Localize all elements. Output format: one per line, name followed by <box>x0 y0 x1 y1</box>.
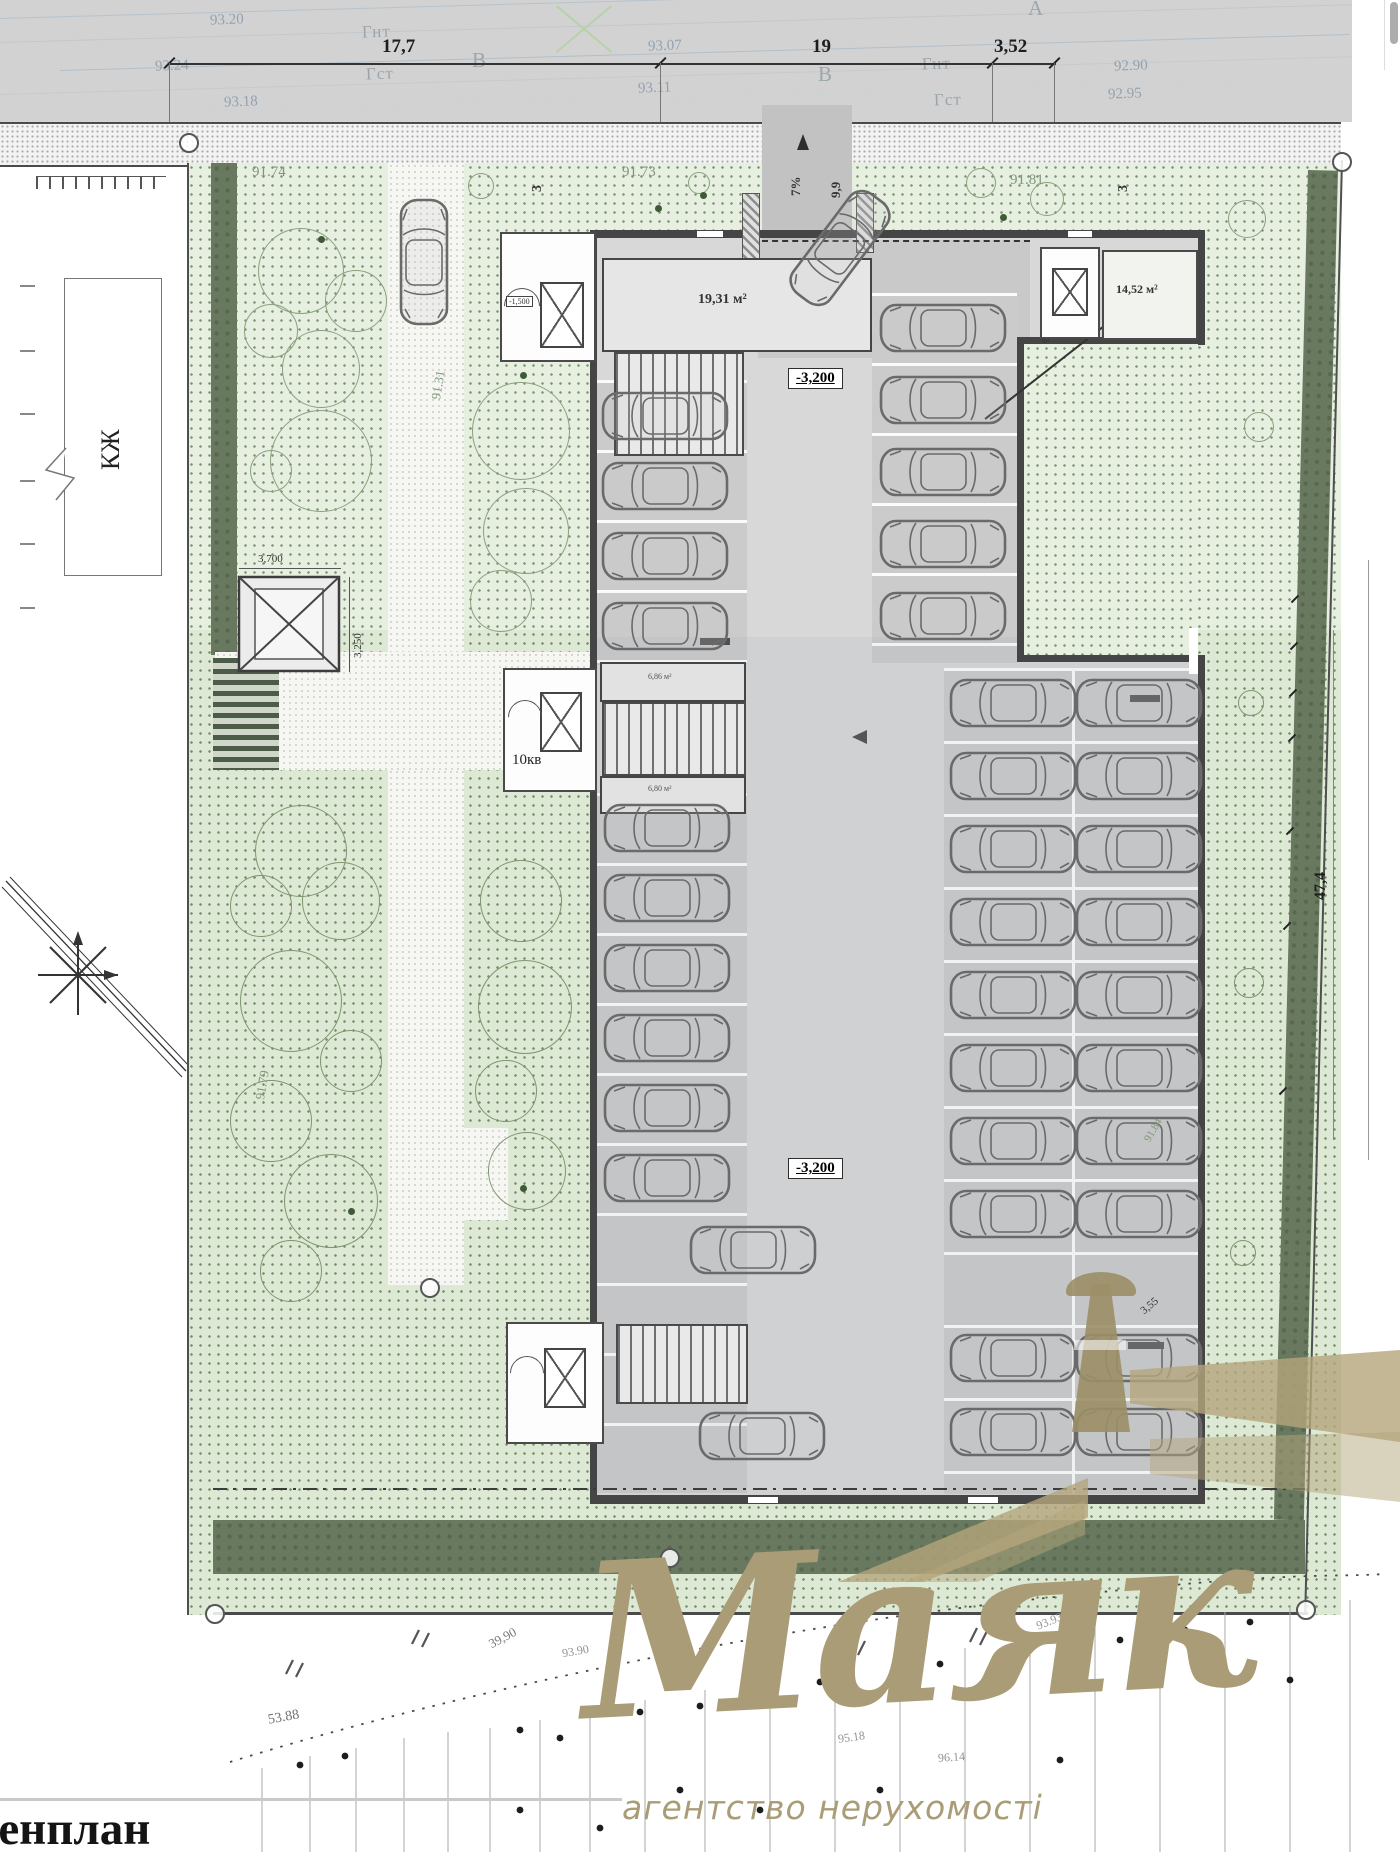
shrub-dot <box>700 192 707 199</box>
car-icon <box>1074 894 1204 950</box>
level-label-box: -3,200 <box>788 368 843 389</box>
wall-opening <box>697 231 723 237</box>
car-icon <box>948 894 1078 950</box>
car-icon <box>948 821 1078 877</box>
garage-wall-top <box>590 230 1205 238</box>
car-icon <box>602 1080 732 1136</box>
tree <box>230 875 292 937</box>
car-icon <box>1074 1040 1204 1096</box>
stairwell-lower[interactable] <box>616 1324 748 1404</box>
lighthouse-stripe <box>1074 1340 1126 1350</box>
shrub-dot <box>318 236 325 243</box>
survey-dash <box>20 350 35 352</box>
car-icon <box>602 1010 732 1066</box>
scrollbar-track <box>1384 0 1385 70</box>
footer-rule <box>0 1798 622 1801</box>
car-icon <box>1074 1113 1204 1169</box>
small-room-area: 6,80 м² <box>648 784 671 793</box>
elevation-label: 92.95 <box>1108 85 1142 103</box>
elevation-label: 93.11 <box>638 79 672 97</box>
garage-wall-west <box>590 230 597 1503</box>
tree <box>1230 1240 1256 1266</box>
extension-line <box>992 63 993 122</box>
tree <box>1234 968 1264 998</box>
brand-tagline: агентство нерухомості <box>622 1788 1043 1827</box>
dimension-line <box>1333 630 1334 1140</box>
tree <box>1228 200 1266 238</box>
garage-wall-east-upper <box>1198 230 1205 345</box>
survey-dash <box>20 607 35 609</box>
utility-label-gst: Гст <box>366 64 394 85</box>
elevator-upper[interactable] <box>540 282 584 348</box>
room-area-label: 14,52 м² <box>1116 282 1158 297</box>
car-icon <box>1074 748 1204 804</box>
survey-dash <box>20 543 35 545</box>
landscape-pocket <box>1024 344 1198 655</box>
car-icon <box>948 1330 1078 1386</box>
car-icon <box>878 300 1008 356</box>
ramp-direction-arrow <box>797 134 809 150</box>
dimension-line <box>170 63 1056 65</box>
tree <box>480 860 562 942</box>
wall-opening <box>1068 231 1092 237</box>
car-icon <box>878 516 1008 572</box>
site-plan-canvas: 93.20 93.24 93.18 93.07 93.11 92.90 92.9… <box>0 0 1400 1852</box>
car-icon <box>878 588 1008 644</box>
tree <box>966 168 996 198</box>
boundary-marker <box>420 1278 440 1298</box>
dimension-label: 3,52 <box>994 36 1027 58</box>
setback-dim: 3 <box>1116 185 1132 192</box>
level-value: -3,200 <box>796 1160 835 1176</box>
tree <box>475 1060 537 1122</box>
tree <box>468 173 494 199</box>
axis-label-a: А <box>1028 0 1043 21</box>
tree <box>230 1080 312 1162</box>
wall-opening <box>1189 628 1198 674</box>
shaft-height-label: 3,250 <box>352 633 364 658</box>
dimension-line <box>349 577 350 672</box>
car-icon <box>600 598 730 654</box>
garage-wall-east-block-top <box>1023 655 1205 662</box>
car-icon <box>948 675 1078 731</box>
boundary-marker <box>1332 152 1352 172</box>
tree <box>472 382 570 480</box>
car-icon <box>1074 1186 1204 1242</box>
level-value: -3,200 <box>796 370 835 386</box>
shrub-dot <box>348 1208 355 1215</box>
survey-dash <box>20 285 35 287</box>
tree <box>1238 690 1264 716</box>
car-icon <box>697 1408 827 1464</box>
car-icon <box>1074 967 1204 1023</box>
hedge <box>211 163 237 655</box>
car-icon <box>396 197 452 327</box>
car-icon <box>1074 675 1204 731</box>
tree <box>488 1132 566 1210</box>
shrub-dot <box>655 205 662 212</box>
ramp-slope-label: 7% <box>788 177 804 197</box>
north-compass-icon <box>0 875 190 1075</box>
car-icon <box>600 388 730 444</box>
tree <box>284 1154 378 1248</box>
extension-line <box>1054 63 1055 122</box>
apartments-label: 10кв <box>512 752 541 769</box>
extension-line <box>660 63 661 122</box>
spot-elevation: 91.74 <box>252 164 286 181</box>
neighbor-building-label: КЖ <box>96 429 126 470</box>
tree <box>320 1030 382 1092</box>
tree <box>282 330 360 408</box>
car-icon <box>948 1040 1078 1096</box>
elevation-label: 92.90 <box>1114 57 1148 75</box>
car-icon <box>948 748 1078 804</box>
shrub-dot <box>520 372 527 379</box>
garage-wall-pocket-west <box>1017 337 1024 662</box>
elevation-label: 93.18 <box>224 93 258 111</box>
tree <box>260 1240 322 1302</box>
ramp-width-label: 9,9 <box>828 182 844 198</box>
survey-number: 96.14 <box>938 1749 966 1766</box>
boundary-marker <box>179 133 199 153</box>
tree <box>1244 412 1274 442</box>
car-icon <box>602 800 732 856</box>
survey-dash <box>20 413 35 415</box>
car-icon <box>602 1150 732 1206</box>
car-icon <box>1074 821 1204 877</box>
ramp-dashed-line <box>762 240 1030 242</box>
shrub-dot <box>520 1185 527 1192</box>
level-label-small: -1,500 <box>506 296 533 307</box>
setback-dim: 3 <box>530 185 546 192</box>
dimension-label: 17,7 <box>382 36 415 58</box>
sidewalk <box>852 122 1341 167</box>
tree <box>302 862 380 940</box>
tree <box>483 488 569 574</box>
small-room-area: 6,86 м² <box>648 672 671 681</box>
wall-opening <box>748 1497 778 1503</box>
tree <box>478 960 572 1054</box>
tree <box>470 570 532 632</box>
room-area-label: 19,31 м² <box>698 292 747 308</box>
dimension-label: 19 <box>812 36 831 58</box>
aisle-direction-arrow <box>852 730 867 744</box>
level-label-box: -3,200 <box>788 1158 843 1179</box>
car-icon <box>948 1404 1078 1460</box>
east-dimension-label: 47,4 <box>1312 872 1330 900</box>
plan-title: Генплан <box>0 1802 150 1852</box>
dimension-line <box>1368 560 1369 1160</box>
skylight-shaft <box>237 575 341 675</box>
stairwell-mid[interactable] <box>602 702 746 776</box>
elevator-lower[interactable] <box>544 1348 586 1408</box>
car-icon <box>878 444 1008 500</box>
tree <box>688 172 710 194</box>
tree <box>325 270 387 332</box>
car-icon <box>602 870 732 926</box>
car-icon <box>602 940 732 996</box>
site-boundary-left <box>187 163 189 1615</box>
elevation-label: 93.07 <box>648 37 682 55</box>
scrollbar-thumb[interactable] <box>1390 2 1398 44</box>
tree <box>240 950 342 1052</box>
car-icon <box>948 1186 1078 1242</box>
elevator-ne[interactable] <box>1052 268 1088 316</box>
brand-logo: Маяк <box>575 1501 1255 1751</box>
axis-label-b: В <box>472 48 486 73</box>
spot-elevation: 91.81 <box>1010 172 1044 189</box>
sidewalk <box>0 122 762 167</box>
car-icon <box>688 1222 818 1278</box>
tech-room-mid-1 <box>600 662 746 702</box>
elevator-mid[interactable] <box>540 692 582 752</box>
car-icon <box>600 458 730 514</box>
extension-line <box>169 63 170 125</box>
car-icon <box>948 1113 1078 1169</box>
car-icon <box>948 967 1078 1023</box>
elevation-label: 93.20 <box>210 11 244 29</box>
neighbor-building-outline <box>64 278 162 576</box>
tree <box>250 450 292 492</box>
car-icon <box>878 372 1008 428</box>
axis-label-b: В <box>818 62 832 87</box>
utility-label-gst: Гст <box>934 90 962 111</box>
building-break-symbol <box>44 448 88 504</box>
car-icon <box>600 528 730 584</box>
survey-dash <box>20 480 35 482</box>
shrub-dot <box>1000 214 1007 221</box>
shaft-width-label: 3,700 <box>258 553 283 565</box>
crosswalk-symbol <box>36 176 166 189</box>
dimension-line <box>239 568 341 569</box>
spot-elevation: 91.73 <box>622 164 656 181</box>
